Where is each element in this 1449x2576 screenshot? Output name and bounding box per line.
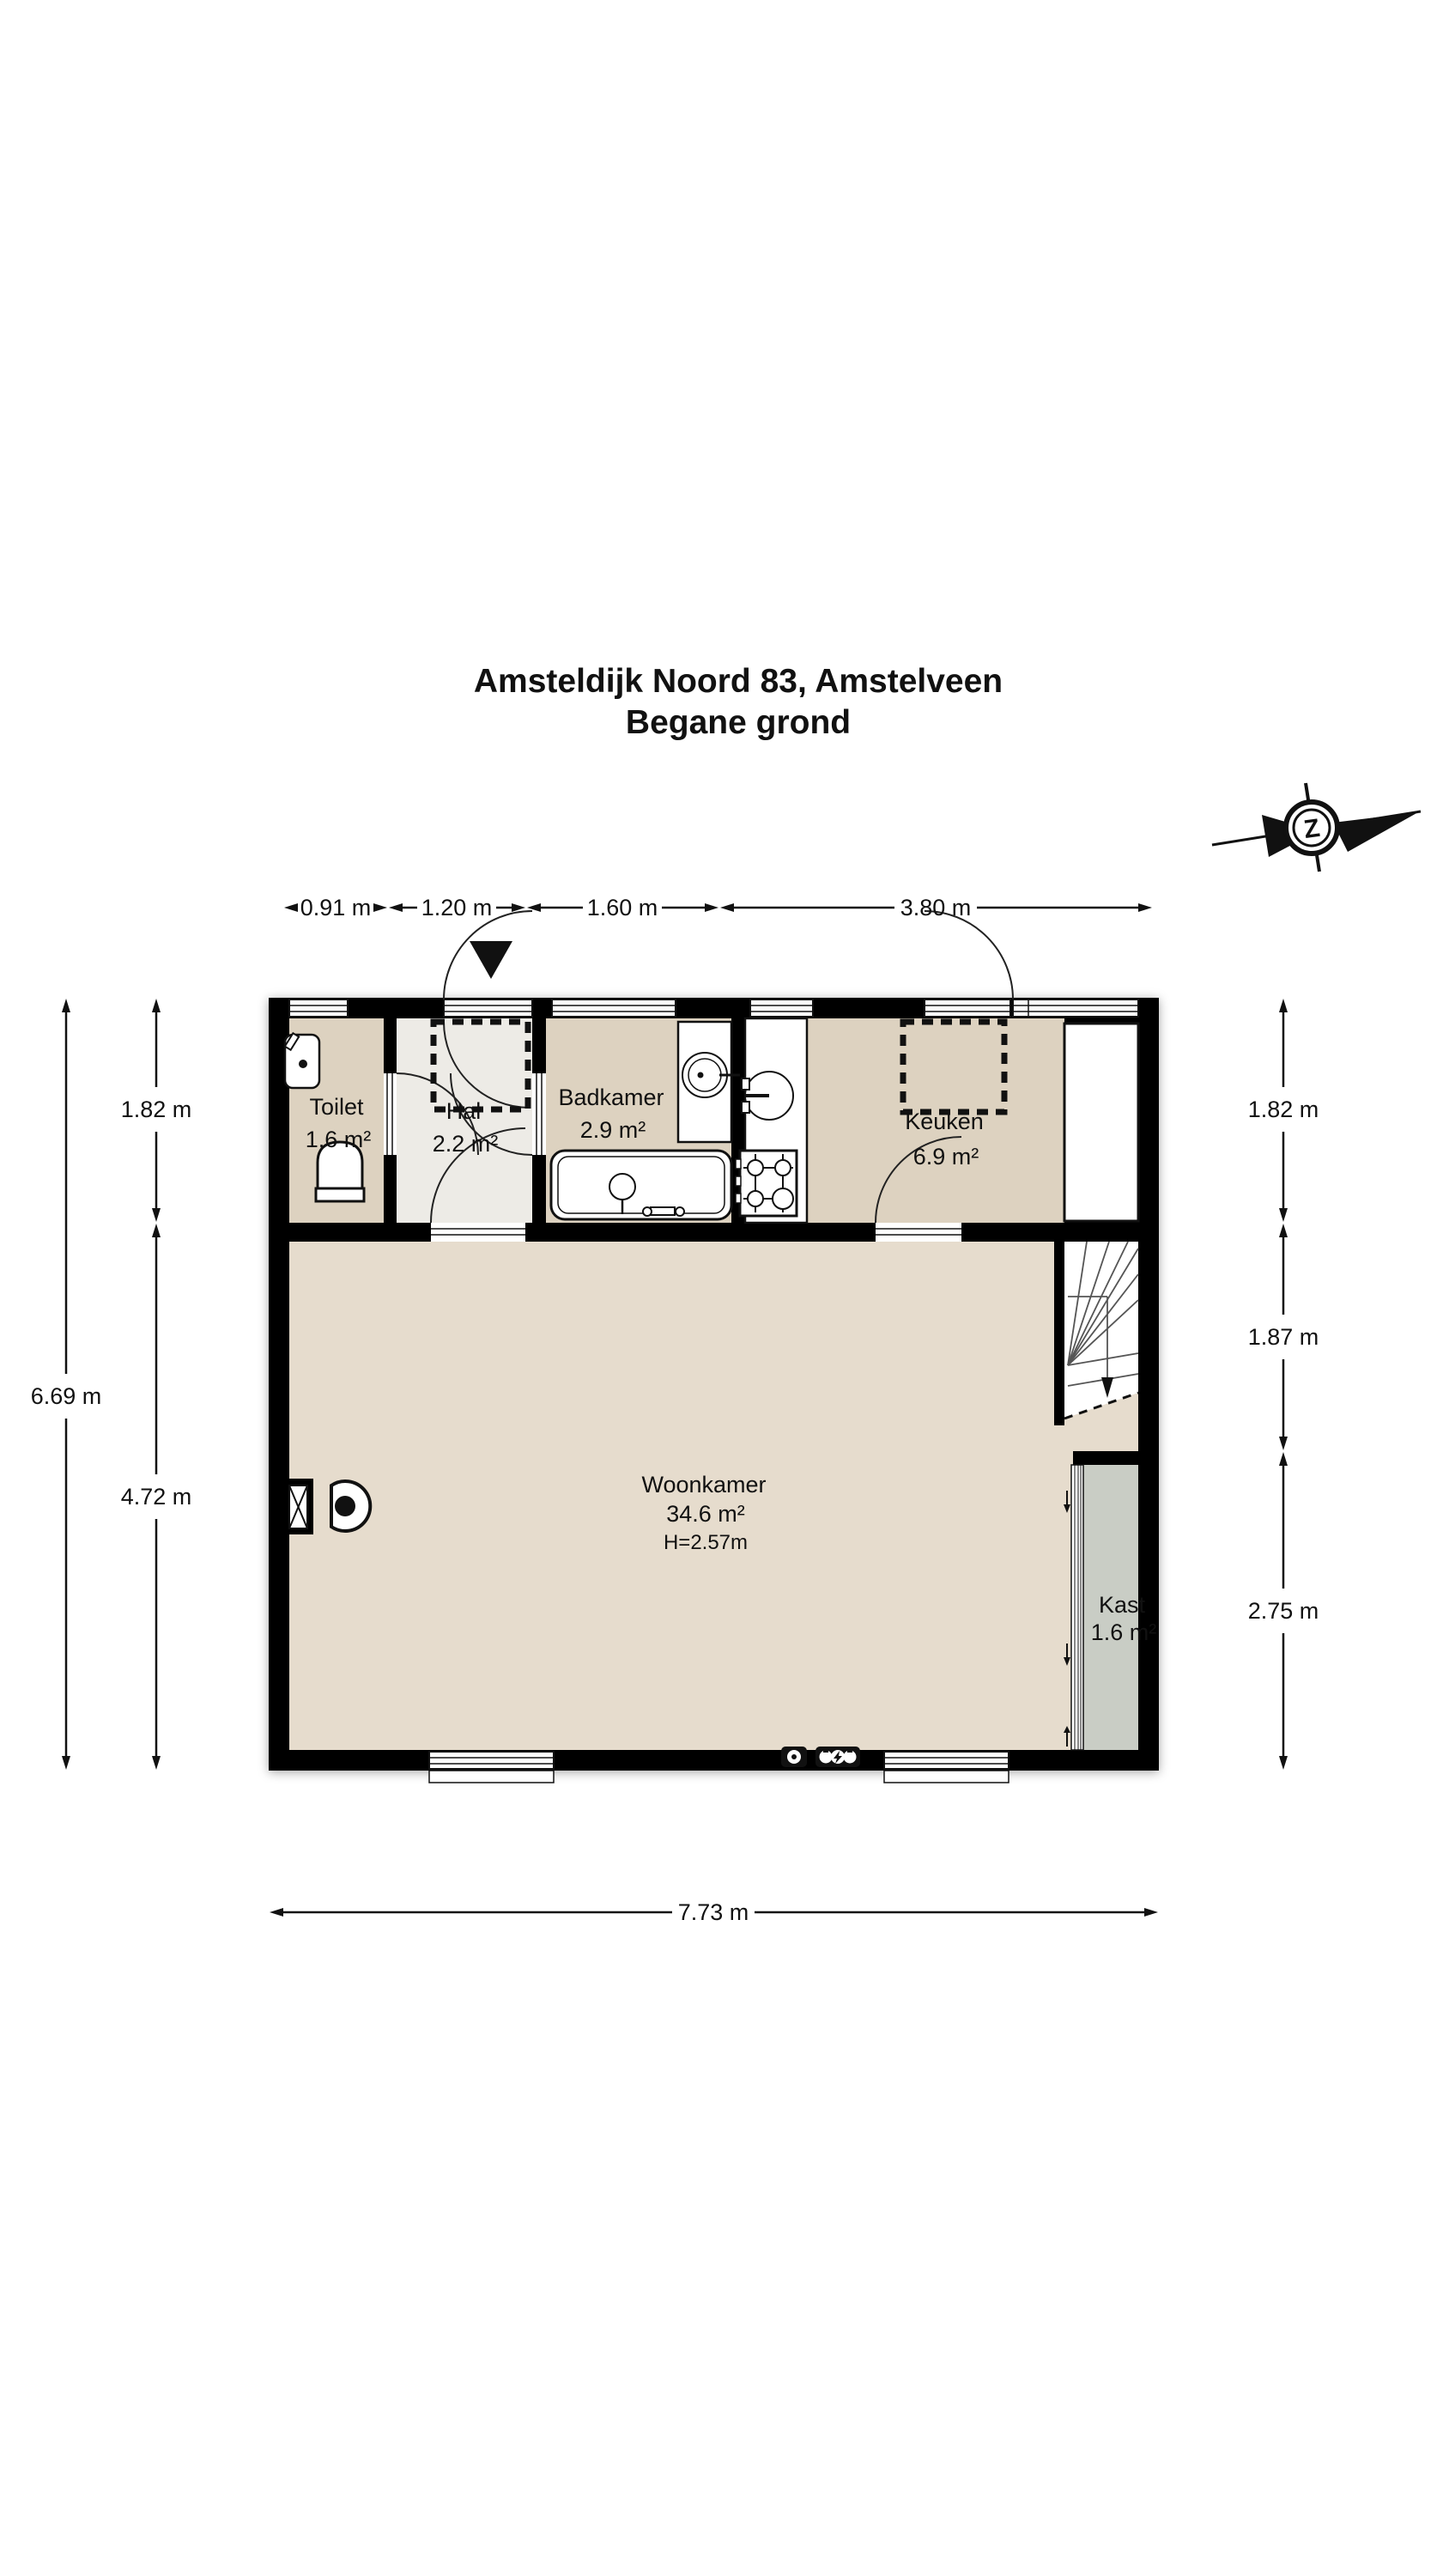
- dimension-left-segments: 1.82 m 4.72 m: [121, 999, 192, 1770]
- washbasin-icon: [678, 1022, 740, 1142]
- room-woonkamer-height: H=2.57m: [664, 1531, 748, 1554]
- keuken-back-door: [925, 911, 1013, 1017]
- floor-plan: Toilet 1.6 m² Hal 2.2 m² Badkamer 2.9 m²…: [269, 911, 1159, 1783]
- dimension-left-total-label: 6.69 m: [31, 1383, 102, 1409]
- room-kast-area: 1.6 m²: [1091, 1619, 1157, 1645]
- room-toilet-label: Toilet: [309, 1094, 364, 1120]
- dimension-left-0: 1.82 m: [121, 1097, 192, 1122]
- window-keuken-small-top: [750, 999, 813, 1017]
- bathtub-icon: [551, 1151, 731, 1219]
- power-socket-group-icon: [815, 1747, 860, 1767]
- window-woonkamer-bottom-right: [884, 1752, 1009, 1783]
- north-arrow-icon: Z: [1212, 783, 1421, 872]
- room-toilet-area: 1.6 m²: [306, 1127, 372, 1152]
- dimension-right-0: 1.82 m: [1248, 1097, 1319, 1122]
- gas-hob-icon: [736, 1151, 797, 1216]
- dimension-left-total: 6.69 m: [31, 999, 102, 1770]
- dimension-bottom-label: 7.73 m: [678, 1899, 749, 1925]
- hand-basin-icon: [285, 1033, 319, 1088]
- page-subtitle: Begane grond: [626, 704, 851, 741]
- room-keuken-label: Keuken: [905, 1109, 984, 1134]
- dimension-top-0: 0.91 m: [300, 895, 372, 920]
- dimension-right-1: 1.87 m: [1248, 1324, 1319, 1350]
- window-badkamer-top: [552, 999, 676, 1017]
- window-keuken-right-top: [1013, 999, 1138, 1017]
- dimension-right-2: 2.75 m: [1248, 1598, 1319, 1624]
- dimension-top-1: 1.20 m: [421, 895, 493, 920]
- floorplan-page: Amsteldijk Noord 83, Amstelveen Begane g…: [0, 0, 1449, 2576]
- kitchen-sink-icon: [742, 1072, 793, 1120]
- dimension-top-3: 3.80 m: [900, 895, 972, 920]
- dimension-bottom: 7.73 m: [270, 1899, 1158, 1925]
- socket-icon: [781, 1747, 807, 1767]
- floorplan-canvas: Amsteldijk Noord 83, Amstelveen Begane g…: [0, 0, 1449, 2576]
- kitchen-cabinet: [1064, 1024, 1138, 1221]
- room-woonkamer-area: 34.6 m²: [666, 1501, 745, 1527]
- room-keuken-area: 6.9 m²: [913, 1144, 979, 1170]
- page-title: Amsteldijk Noord 83, Amstelveen: [474, 663, 1003, 700]
- dimension-top-2: 1.60 m: [587, 895, 658, 920]
- room-hal-label: Hal: [446, 1098, 482, 1124]
- stairs: [1054, 1242, 1138, 1425]
- room-woonkamer-label: Woonkamer: [641, 1472, 766, 1498]
- dimension-top: 0.91 m 1.20 m 1.60 m 3.80 m: [284, 895, 1152, 920]
- dimension-left-1: 4.72 m: [121, 1484, 192, 1510]
- room-badkamer-label: Badkamer: [558, 1084, 664, 1110]
- room-badkamer-area: 2.9 m²: [580, 1117, 646, 1143]
- entrance-marker-icon: [470, 941, 512, 979]
- dimension-right-segments: 1.82 m 1.87 m 2.75 m: [1248, 999, 1319, 1770]
- room-kast-label: Kast: [1099, 1592, 1146, 1618]
- window-woonkamer-bottom-left: [429, 1752, 554, 1783]
- room-hal-area: 2.2 m²: [433, 1131, 499, 1157]
- window-toilet-top: [289, 999, 348, 1017]
